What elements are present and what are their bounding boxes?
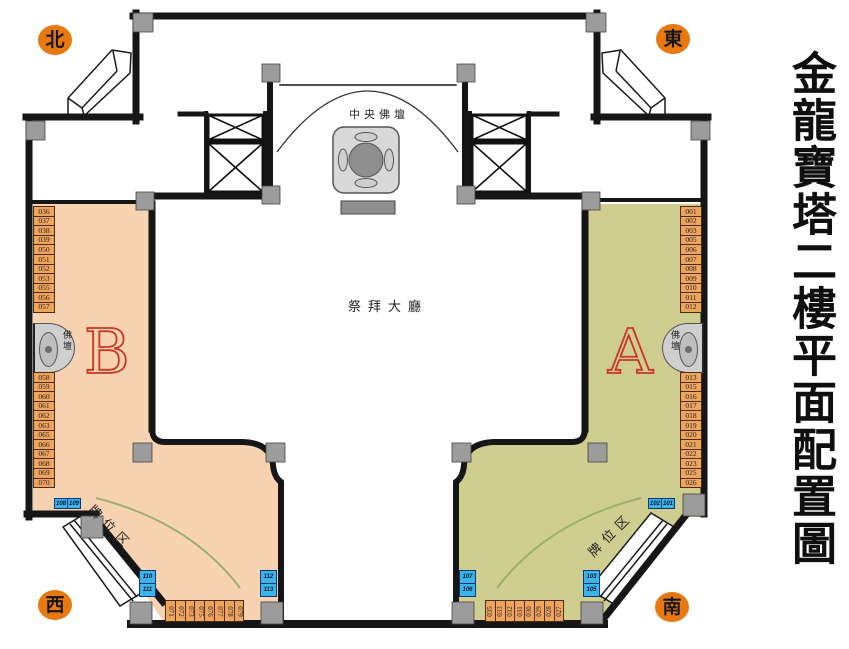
niche-cell: 079: [234, 600, 245, 622]
zone-a-service-pair-left: 107106: [459, 571, 476, 597]
central-altar-platform: [333, 127, 399, 214]
altar-bench: [341, 201, 395, 214]
side-altar-a-label: 佛壇: [668, 330, 681, 352]
zone-a-niche-row-bottom: 035033032031030029028027: [486, 600, 564, 622]
compass-west: 西: [38, 590, 72, 620]
worship-hall-label: 祭拜大廳: [318, 296, 458, 315]
service-cell: 107: [459, 570, 476, 584]
service-cell: 112: [260, 570, 277, 584]
compass-north: 北: [38, 25, 72, 55]
niche-cell: 057: [33, 302, 55, 313]
service-cell: 110: [139, 570, 156, 584]
zone-b-niche-column-top: 036037038039050051052053055056057: [33, 207, 55, 313]
niche-cell: 070: [33, 478, 55, 489]
zone-b-area: [33, 204, 281, 621]
compass-east: 東: [656, 24, 690, 54]
zone-a-area: [456, 204, 704, 621]
zone-b-letter: B: [84, 315, 130, 388]
service-cell: 109: [67, 498, 81, 509]
altar-statue-icon: [39, 332, 58, 367]
elevator-shaft-right: [472, 115, 527, 192]
zone-b-service-pair-left: 110111: [139, 571, 156, 597]
zone-a-letter: A: [607, 315, 654, 388]
service-cell: 105: [583, 583, 600, 597]
niche-cell: 012: [680, 302, 702, 313]
service-cell: 108: [54, 498, 68, 509]
altar-dot-icon: [685, 346, 692, 353]
central-altar-label: 中央佛壇: [324, 106, 434, 122]
stairs-northwest: [68, 50, 131, 116]
service-cell: 106: [459, 583, 476, 597]
service-cell: 103: [583, 570, 600, 584]
zone-a-service-pair-right: 103105: [583, 571, 600, 597]
elevator-shaft-left: [208, 115, 263, 192]
compass-south: 南: [655, 592, 689, 622]
floor-plan-drawing: B A: [0, 0, 849, 649]
altar-statue-icon: [679, 332, 698, 367]
niche-cell: 026: [680, 478, 702, 489]
stairs-northeast: [602, 50, 665, 116]
zone-b-niche-column-bottom: 058059060061062063065066067068069070: [33, 373, 55, 488]
zone-a-service-pair-top: 102101: [649, 498, 675, 509]
niche-cell: 027: [554, 600, 565, 622]
side-altar-b-label: 佛壇: [60, 330, 73, 352]
service-cell: 111: [139, 583, 156, 597]
zone-a-niche-column-top: 001002003005006007008009010011012: [680, 207, 702, 313]
zone-b-service-pair-right: 112113: [260, 571, 277, 597]
service-cell: 101: [661, 498, 675, 509]
zone-b-niche-row-bottom: 071072073075076077078079: [166, 600, 244, 622]
zone-a-niche-column-bottom: 013015016017018019020021022023025026: [680, 373, 702, 488]
altar-dot-icon: [45, 346, 52, 353]
page-title: 金龍寶塔二樓平面配置圖: [778, 50, 843, 625]
floor-plan: B A 北 東 西 南 金龍寶塔二樓平面配置圖 中央佛壇 祭拜大廳 牌位区 牌位…: [0, 0, 849, 649]
zone-b-service-pair-top: 108109: [55, 498, 81, 509]
service-cell: 102: [648, 498, 662, 509]
service-cell: 113: [260, 583, 277, 597]
